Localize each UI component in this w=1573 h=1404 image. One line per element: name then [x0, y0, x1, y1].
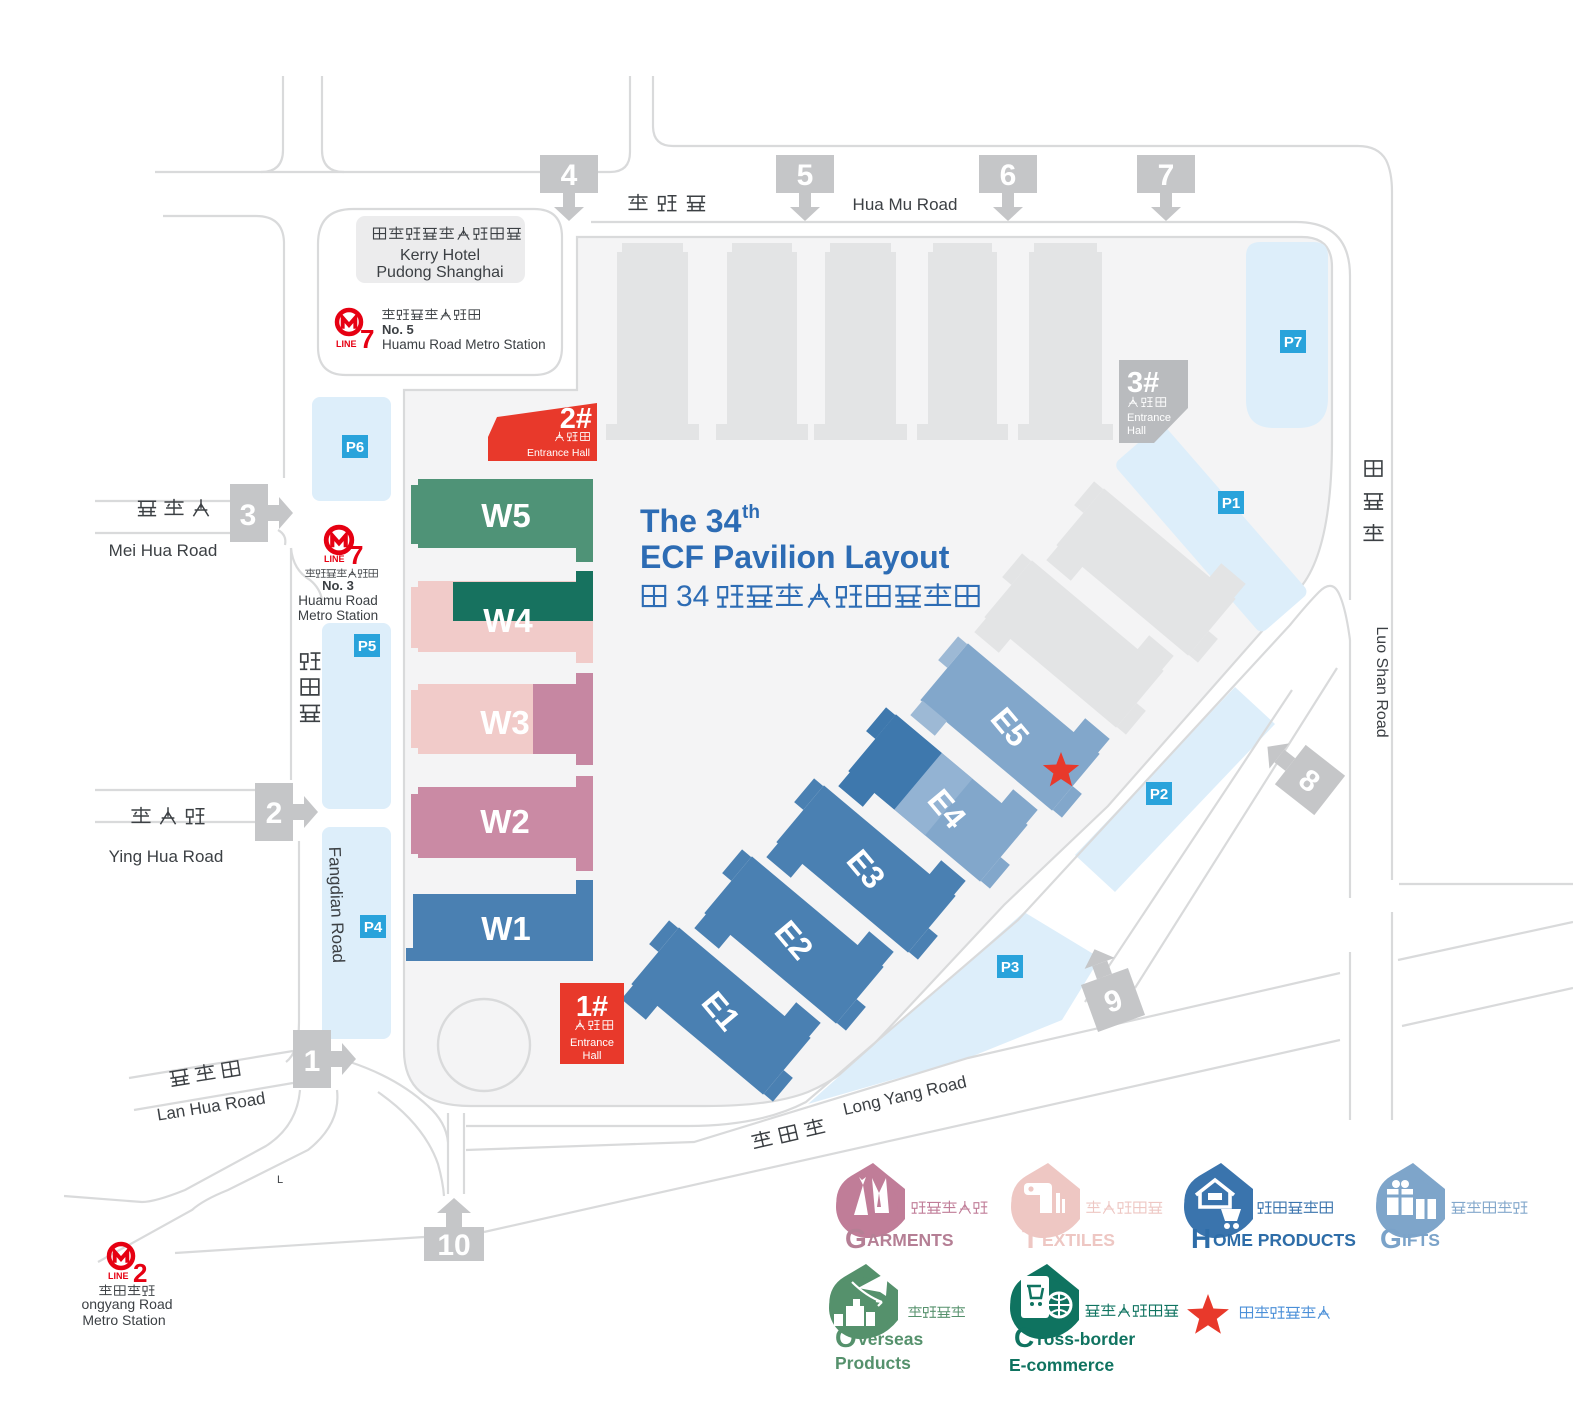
- svg-text:3#: 3#: [1127, 367, 1159, 399]
- svg-text:Entrance: Entrance: [570, 1037, 614, 1049]
- svg-text:The 34: The 34: [640, 503, 742, 539]
- svg-text:th: th: [742, 502, 760, 523]
- svg-text:6: 6: [1000, 159, 1017, 192]
- svg-text:Hall: Hall: [583, 1050, 602, 1062]
- svg-text:OME PRODUCTS: OME PRODUCTS: [1213, 1230, 1356, 1250]
- svg-text:P2: P2: [1150, 786, 1168, 803]
- svg-text:Huamu Road Metro Station: Huamu Road Metro Station: [382, 337, 546, 352]
- svg-text:4: 4: [561, 159, 578, 192]
- svg-text:O: O: [835, 1322, 857, 1353]
- svg-text:P5: P5: [358, 638, 376, 655]
- svg-text:5: 5: [797, 159, 814, 192]
- svg-text:10: 10: [437, 1229, 470, 1262]
- svg-text:IFTS: IFTS: [1402, 1230, 1440, 1250]
- svg-text:7: 7: [349, 540, 363, 570]
- svg-text:W4: W4: [483, 602, 533, 639]
- svg-text:Entrance Hall: Entrance Hall: [527, 447, 590, 459]
- svg-text:2#: 2#: [560, 403, 592, 435]
- svg-text:EXTILES: EXTILES: [1042, 1230, 1115, 1250]
- svg-text:G: G: [1380, 1223, 1402, 1254]
- svg-text:Hall: Hall: [1127, 425, 1146, 437]
- svg-text:LINE: LINE: [324, 554, 345, 564]
- svg-text:L: L: [277, 1174, 283, 1186]
- svg-text:Entrance: Entrance: [1127, 412, 1171, 424]
- svg-text:Metro Station: Metro Station: [298, 608, 378, 623]
- svg-text:P7: P7: [1284, 334, 1302, 351]
- svg-text:1#: 1#: [576, 991, 608, 1023]
- svg-text:Huamu Road: Huamu Road: [298, 593, 378, 608]
- svg-text:Products: Products: [835, 1353, 911, 1373]
- svg-text:34: 34: [676, 580, 709, 613]
- svg-text:P6: P6: [346, 439, 364, 456]
- svg-text:ECF Pavilion Layout: ECF Pavilion Layout: [640, 539, 950, 575]
- svg-text:W2: W2: [480, 803, 530, 840]
- svg-text:7: 7: [360, 324, 374, 354]
- svg-text:Kerry Hotel: Kerry Hotel: [400, 247, 480, 264]
- svg-text:verseas: verseas: [858, 1329, 923, 1349]
- svg-text:No. 5: No. 5: [382, 322, 414, 337]
- svg-text:Pudong Shanghai: Pudong Shanghai: [376, 264, 503, 281]
- svg-text:Mei Hua Road: Mei Hua Road: [109, 541, 218, 560]
- svg-text:W3: W3: [480, 704, 530, 741]
- svg-text:ARMENTS: ARMENTS: [867, 1230, 954, 1250]
- svg-text:ross-border: ross-border: [1037, 1329, 1135, 1349]
- svg-text:P4: P4: [364, 919, 383, 936]
- svg-text:Ying Hua Road: Ying Hua Road: [109, 847, 224, 866]
- svg-text:1: 1: [304, 1045, 321, 1078]
- svg-text:C: C: [1014, 1322, 1034, 1353]
- svg-text:2: 2: [266, 797, 283, 830]
- svg-text:Metro Station: Metro Station: [82, 1312, 165, 1328]
- svg-text:3: 3: [240, 499, 257, 532]
- svg-text:P3: P3: [1001, 959, 1019, 976]
- svg-text:ongyang Road: ongyang Road: [81, 1296, 172, 1312]
- svg-text:2: 2: [133, 1258, 147, 1288]
- svg-text:E-commerce: E-commerce: [1009, 1355, 1114, 1375]
- svg-text:7: 7: [1158, 159, 1175, 192]
- svg-text:W5: W5: [481, 497, 531, 534]
- svg-text:LINE: LINE: [108, 1271, 129, 1281]
- svg-text:Luo Shan Road: Luo Shan Road: [1373, 626, 1390, 737]
- svg-text:No. 3: No. 3: [322, 578, 354, 593]
- svg-text:LINE: LINE: [336, 339, 357, 349]
- svg-text:T: T: [1022, 1223, 1039, 1254]
- svg-text:P1: P1: [1222, 495, 1240, 512]
- svg-text:G: G: [845, 1223, 867, 1254]
- svg-text:H: H: [1191, 1223, 1211, 1254]
- svg-text:W1: W1: [481, 910, 531, 947]
- svg-text:Fangdian Road: Fangdian Road: [325, 846, 348, 963]
- svg-text:Hua Mu Road: Hua Mu Road: [853, 195, 958, 214]
